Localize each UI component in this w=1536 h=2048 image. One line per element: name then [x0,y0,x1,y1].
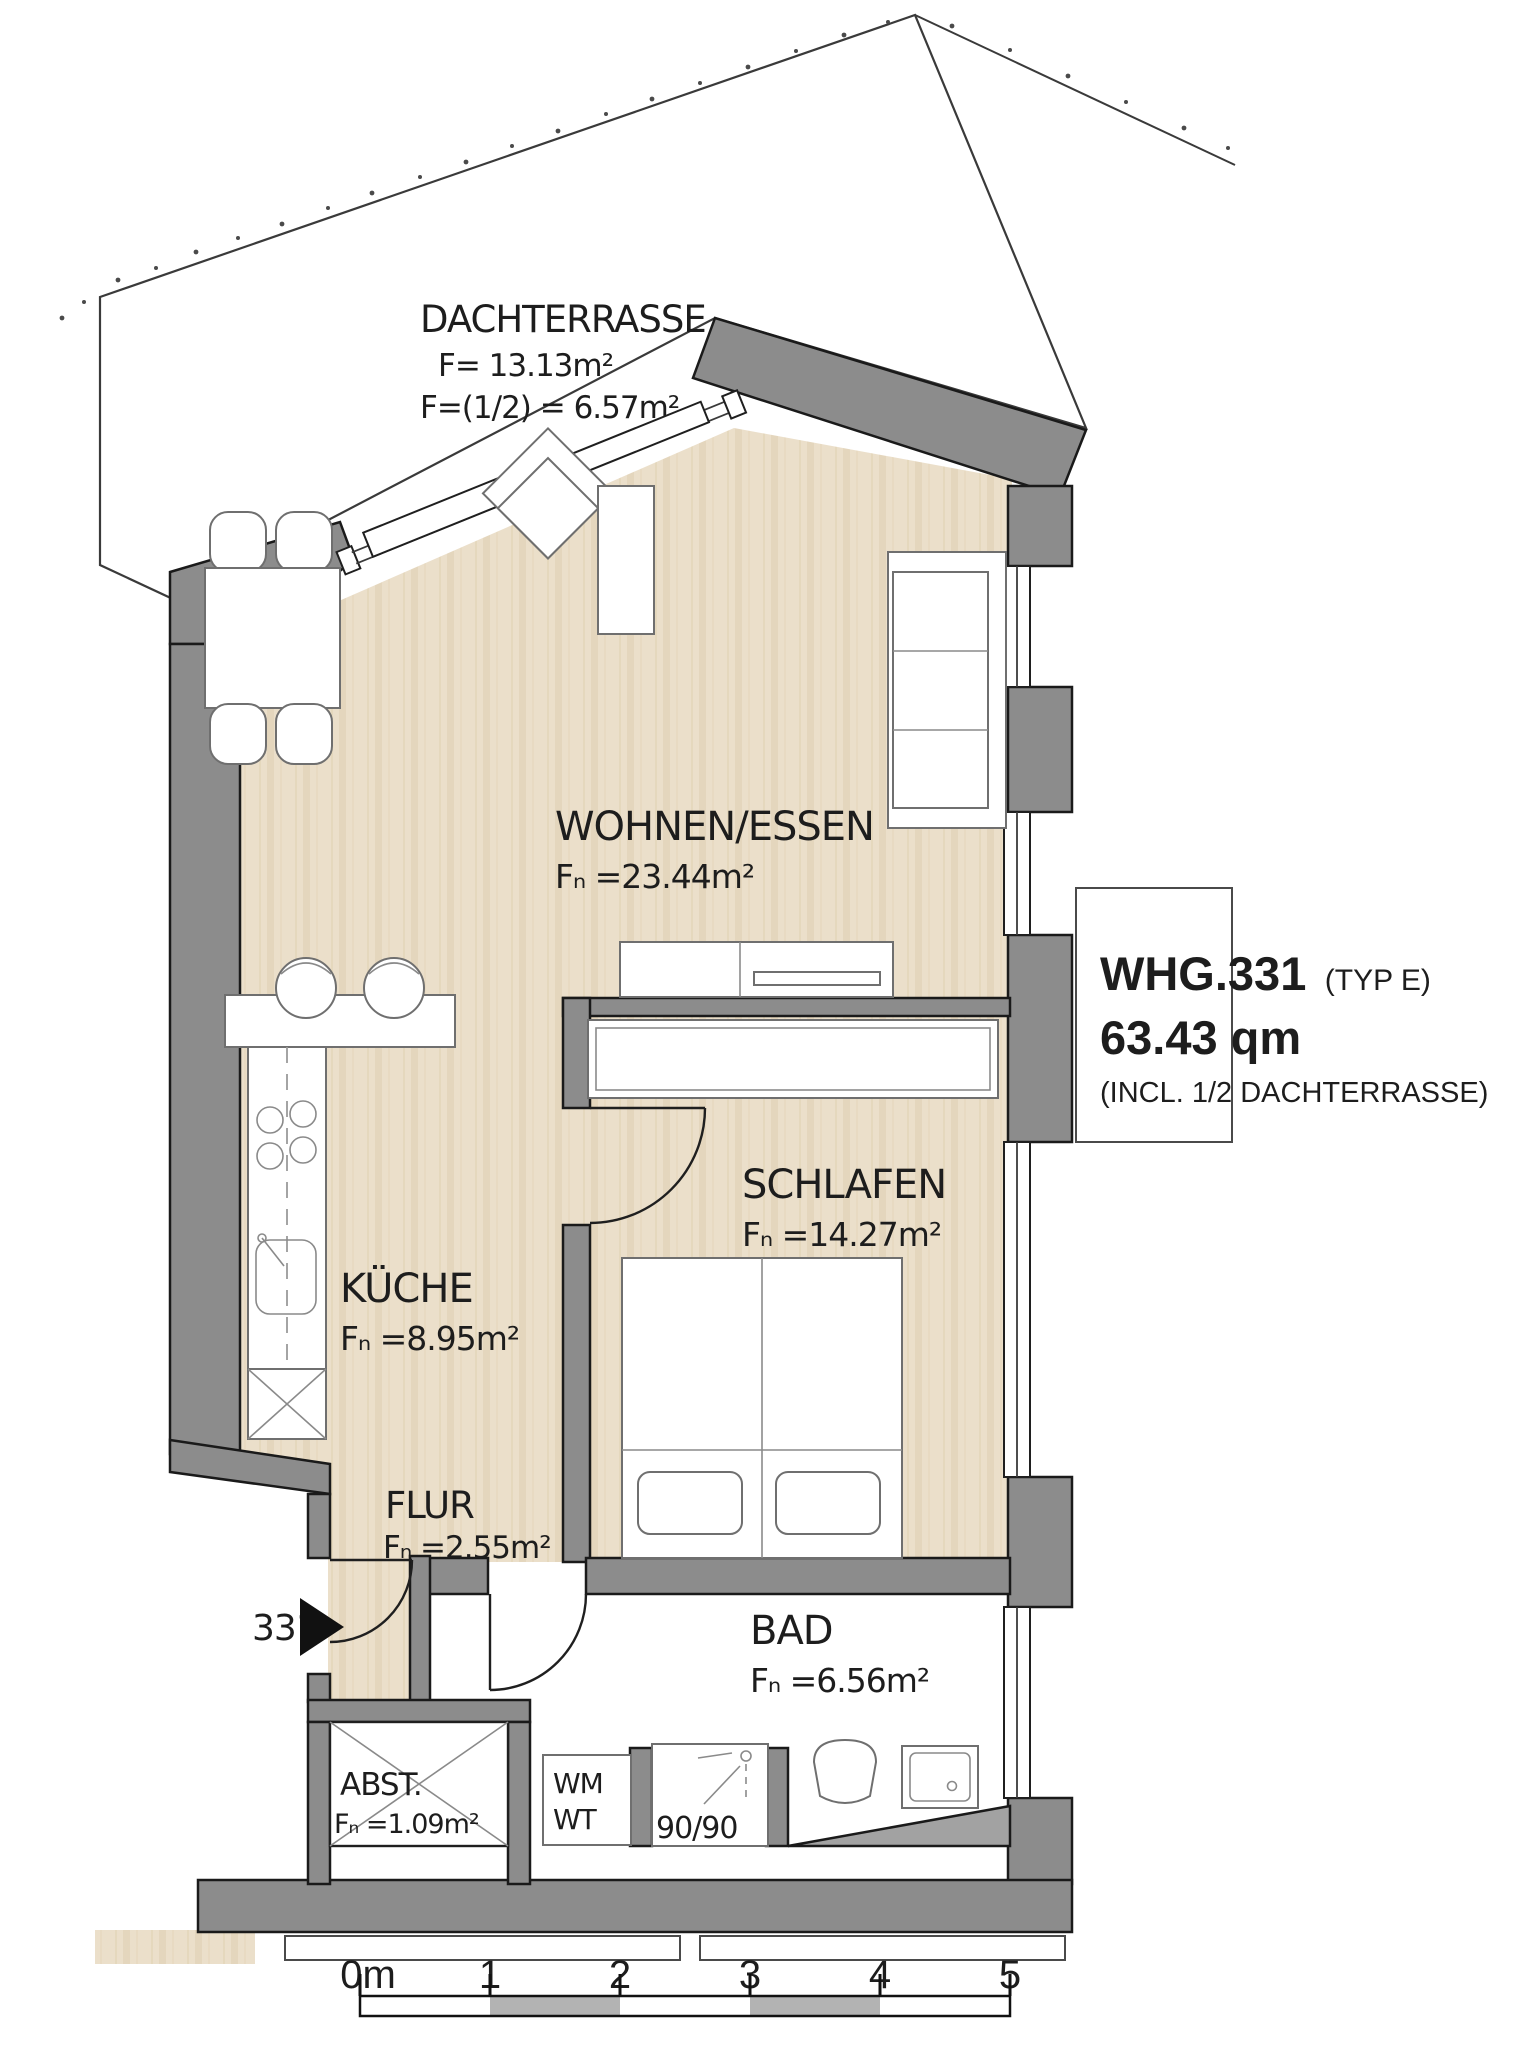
living-area: Fₙ =23.44m² [555,857,754,896]
unit-type: (TYP E) [1325,964,1431,997]
wall-right-segment [1008,1798,1072,1884]
bedroom-door-opening-floor [560,1104,592,1228]
wall-left [170,644,240,1454]
scale-bar-outline [360,1996,1010,2016]
wall-bottom [198,1880,1072,1932]
bar-stool [276,958,336,1018]
kitchen-label: KÜCHE [340,1264,473,1312]
wall-bedroom-left-lower [563,1225,590,1562]
coffee-table [598,486,654,634]
pillow [776,1472,880,1534]
wall-hall-left-upper [308,1494,330,1558]
sofa [888,552,1006,828]
wall-stub-shower-right [766,1748,788,1846]
wall-right-segment [1008,1477,1072,1607]
dining-chair [210,704,266,764]
wall-bedroom-left-upper [563,998,590,1108]
window-bedroom [1004,1142,1030,1477]
kitchen-area: Fₙ =8.95m² [340,1319,519,1358]
scale-bar: 0m 1 2 3 4 5 [340,1953,1021,2016]
scale-segment-gray [750,1996,880,2016]
wardrobe [588,1020,998,1098]
double-bed [622,1258,902,1558]
dining-chair [276,512,332,572]
storage-label: ABST. [340,1767,422,1803]
wall-right-segment [1008,935,1072,1142]
bedroom-area: Fₙ =14.27m² [742,1215,941,1254]
shower: 90/90 [652,1744,768,1846]
washer-dryer: WM WT [543,1755,631,1845]
wall-stub-shower-left [630,1748,652,1846]
wall-storage-left [308,1722,330,1884]
wall-bedroom-top [563,998,1010,1016]
dining-chair [276,704,332,764]
bedroom-label: SCHLAFEN [742,1162,946,1208]
wall-right-segment [1008,687,1072,812]
floor-plan-page: DACHTERRASSE F= 13.13m² F=(1/2) = 6.57m² [0,0,1536,2048]
total-area: 63.43 qm [1100,1011,1301,1064]
living-label: WOHNEN/ESSEN [555,804,874,850]
wall-hall-left-lower [308,1674,330,1702]
kitchen-cabinet [248,1369,326,1439]
unit-number: WHG.331 [1100,947,1306,1000]
wall-storage-top [308,1700,530,1722]
terrace-area: F= 13.13m² [438,348,613,384]
exterior-floor-fragment [95,1930,255,1964]
washer-label: WM [553,1767,603,1800]
storage-area: Fₙ =1.09m² [334,1809,479,1840]
pillow [638,1472,742,1534]
scale-segment-gray [490,1996,620,2016]
dining-table [205,568,340,708]
window-living-1 [1004,566,1030,687]
hall-area: Fₙ =2.55m² [383,1530,551,1566]
floor-plan-svg: DACHTERRASSE F= 13.13m² F=(1/2) = 6.57m² [0,0,1536,2048]
terrace-label: DACHTERRASSE [420,298,706,341]
wall-hall-bath [410,1556,430,1704]
area-note: (INCL. 1/2 DACHTERRASSE) [1100,1077,1488,1109]
shower-size-label: 90/90 [656,1811,737,1846]
terrace-half-area: F=(1/2) = 6.57m² [420,390,679,426]
unit-title: WHG.331 (TYP E) [1100,947,1431,1000]
bath-label: BAD [750,1608,833,1654]
bath-area: Fₙ =6.56m² [750,1661,929,1700]
scale-tick-label: 0m [340,1953,396,1997]
dining-chair [210,512,266,572]
toilet [814,1740,876,1803]
window-bath [1004,1607,1030,1798]
hall-label: FLUR [385,1484,474,1527]
wall-storage-right [508,1722,530,1884]
dryer-label: WT [553,1803,598,1836]
wall-right-segment [1008,486,1072,566]
bathroom-sink [902,1746,978,1808]
window-living-2 [1004,812,1030,935]
bar-stool [364,958,424,1018]
tv-sideboard [620,942,893,997]
title-block: WHG.331 (TYP E) 63.43 qm (INCL. 1/2 DACH… [1100,947,1488,1109]
wall-bath-top [586,1558,1010,1594]
